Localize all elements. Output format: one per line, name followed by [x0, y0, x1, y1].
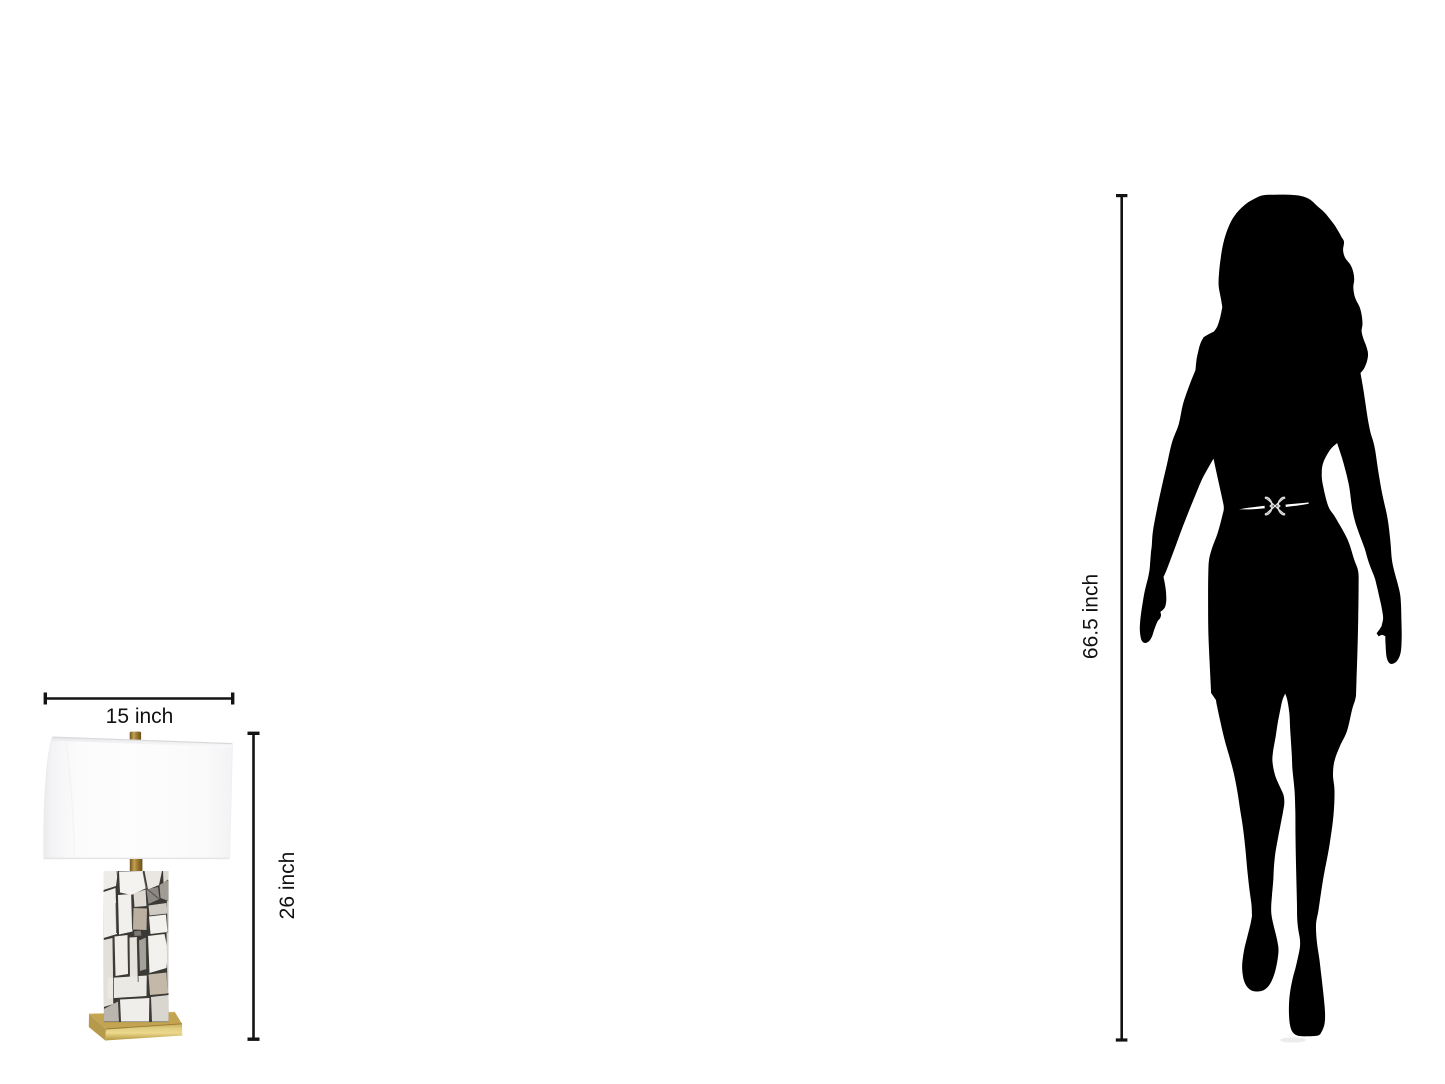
svg-text:15 inch: 15 inch — [106, 705, 174, 728]
svg-text:26 inch: 26 inch — [276, 852, 299, 920]
svg-text:66.5 inch: 66.5 inch — [1080, 574, 1103, 659]
